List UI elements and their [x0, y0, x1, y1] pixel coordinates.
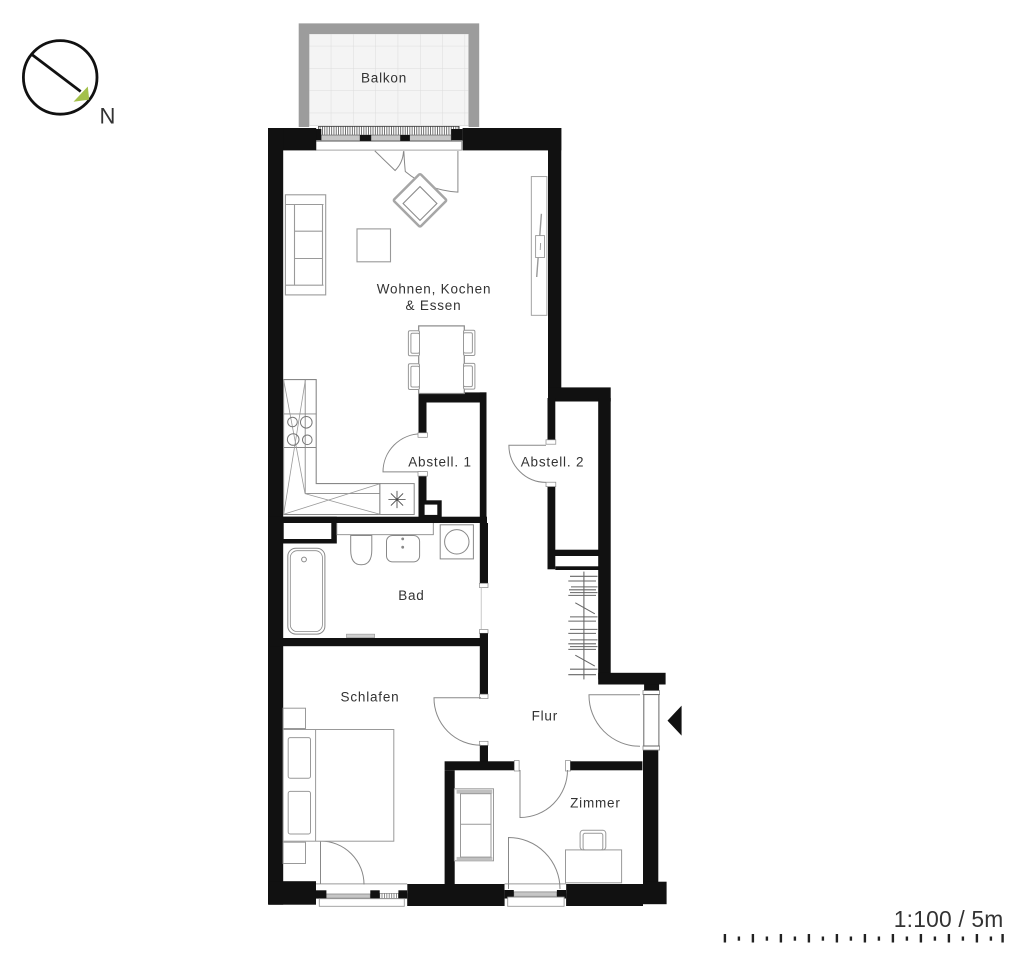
svg-text:1:100 / 5m: 1:100 / 5m — [894, 906, 1004, 932]
svg-text:Balkon: Balkon — [361, 71, 407, 86]
svg-text:Bad: Bad — [398, 588, 424, 603]
svg-text:Abstell. 2: Abstell. 2 — [521, 455, 585, 470]
svg-text:Flur: Flur — [532, 709, 558, 724]
svg-text:Wohnen, Kochen: Wohnen, Kochen — [377, 281, 492, 296]
svg-text:Abstell. 1: Abstell. 1 — [408, 455, 472, 470]
svg-text:& Essen: & Essen — [406, 298, 462, 313]
svg-text:N: N — [100, 104, 116, 129]
svg-text:Schlafen: Schlafen — [341, 689, 400, 704]
svg-text:Zimmer: Zimmer — [570, 796, 621, 811]
